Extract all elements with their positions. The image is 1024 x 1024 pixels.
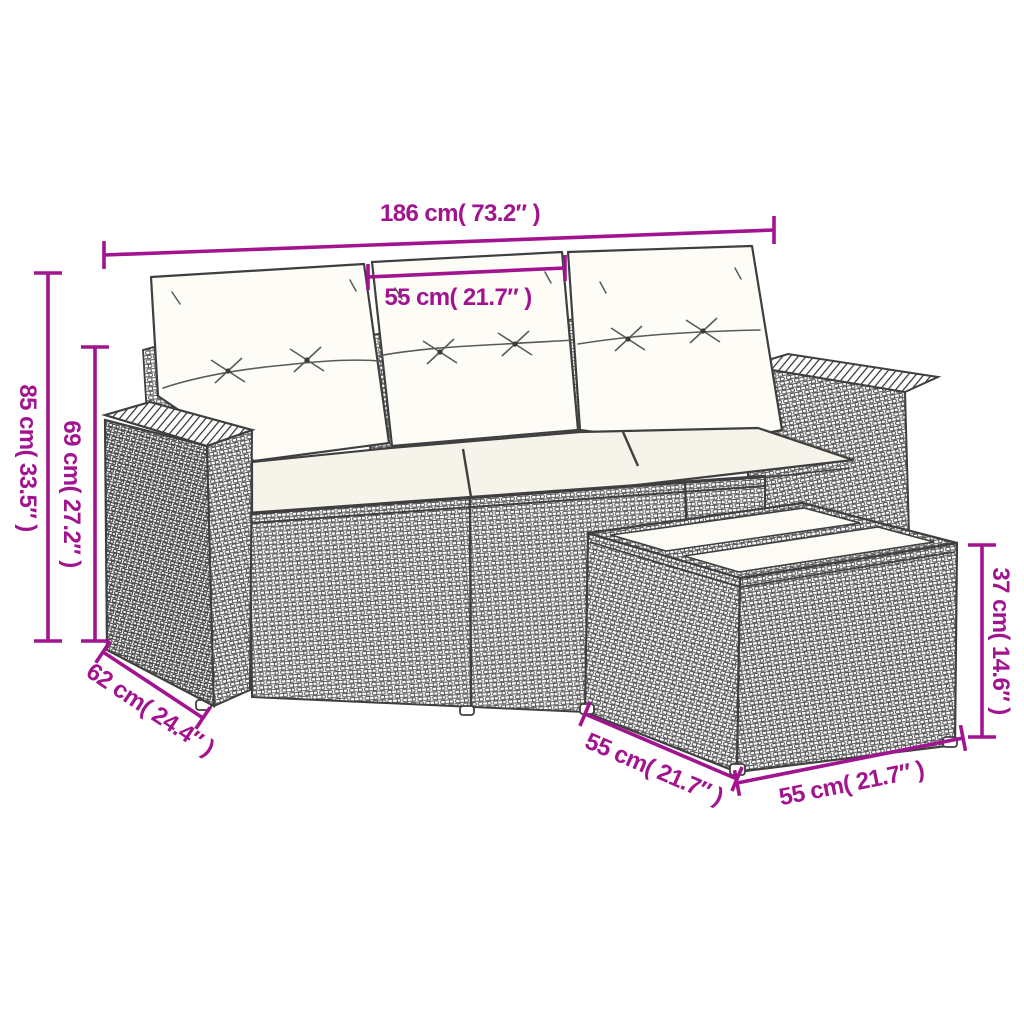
dim-label-back-height: 69 cm( 27.2″ ) [58,420,85,567]
dim-label-seat-width: 55 cm( 21.7″ ) [384,284,531,311]
dim-label-table-height: 37 cm( 14.6″ ) [987,567,1014,714]
base-divider-1 [470,499,471,708]
back-cushion-2 [372,252,578,446]
dim-label-sofa-width: 186 cm( 73.2″ ) [380,200,540,227]
back-cushion-2-body [372,252,578,446]
back-cushion-3-body [568,246,782,446]
dim-label-sofa-height: 85 cm( 33.5″ ) [14,384,41,531]
dim-table-height: 37 cm( 14.6″ ) [968,545,1014,737]
dim-back-height: 69 cm( 27.2″ ) [58,347,109,641]
diagram-canvas: 186 cm( 73.2″ ) 55 cm( 21.7″ ) 85 cm( 33… [0,0,1024,1024]
back-cushion-3 [568,246,782,446]
dimension-diagram: 186 cm( 73.2″ ) 55 cm( 21.7″ ) 85 cm( 33… [0,0,1024,1024]
sofa-left-armrest [105,402,252,706]
table-front-right-face [737,543,957,772]
sofa-foot-mid [460,706,474,715]
dim-sofa-height: 85 cm( 33.5″ ) [14,273,62,641]
left-armrest-side-face [207,430,252,706]
